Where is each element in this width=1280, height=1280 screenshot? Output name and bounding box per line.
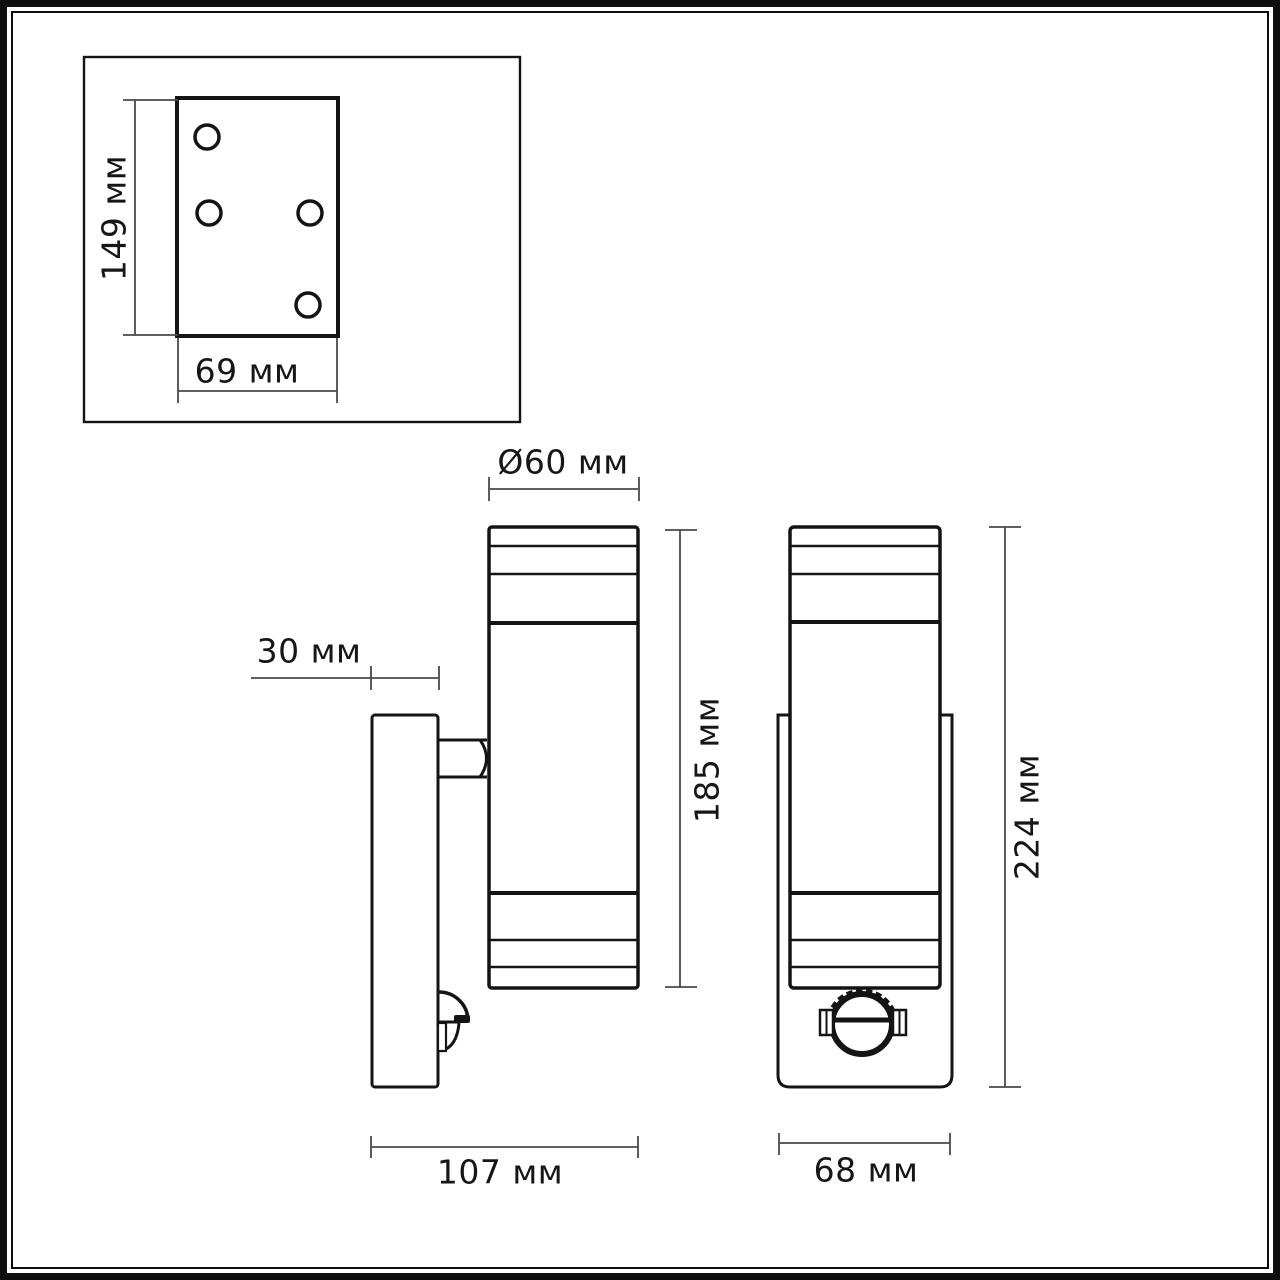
side-backplate (372, 715, 438, 1087)
side-cylinder-bands (489, 546, 638, 967)
mounting-plate-outline (177, 98, 338, 336)
technical-drawing-page: 149 мм 69 мм Ø60 мм 30 мм 185 мм 107 мм … (0, 0, 1280, 1280)
dim-label-plate-width: 69 мм (195, 355, 300, 388)
dim-label-backplate-depth: 30 мм (257, 635, 362, 668)
screw-hole (197, 201, 221, 225)
dim-label-tube-diameter: Ø60 мм (497, 446, 628, 479)
dim-label-backplate-width: 68 мм (814, 1154, 919, 1187)
sensor-lens-ring (832, 994, 892, 1054)
dim-label-overall-depth: 107 мм (437, 1156, 563, 1189)
side-mounting-arm (438, 740, 487, 777)
sensor-side-mount (438, 1023, 446, 1051)
screw-hole (296, 293, 320, 317)
side-motion-sensor (438, 992, 470, 1051)
front-view (778, 527, 1021, 1155)
screw-hole (195, 125, 219, 149)
side-cylinder-body (489, 527, 638, 988)
mounting-plate-inset (84, 57, 520, 422)
side-view (251, 477, 697, 1158)
dim-label-overall-height: 224 мм (1011, 754, 1044, 880)
dim-label-tube-height: 185 мм (691, 697, 724, 823)
inset-box (84, 57, 520, 422)
front-cylinder-body (790, 527, 940, 988)
screw-hole (298, 201, 322, 225)
drawing-linework (0, 0, 1280, 1280)
dim-label-plate-height: 149 мм (98, 155, 131, 281)
